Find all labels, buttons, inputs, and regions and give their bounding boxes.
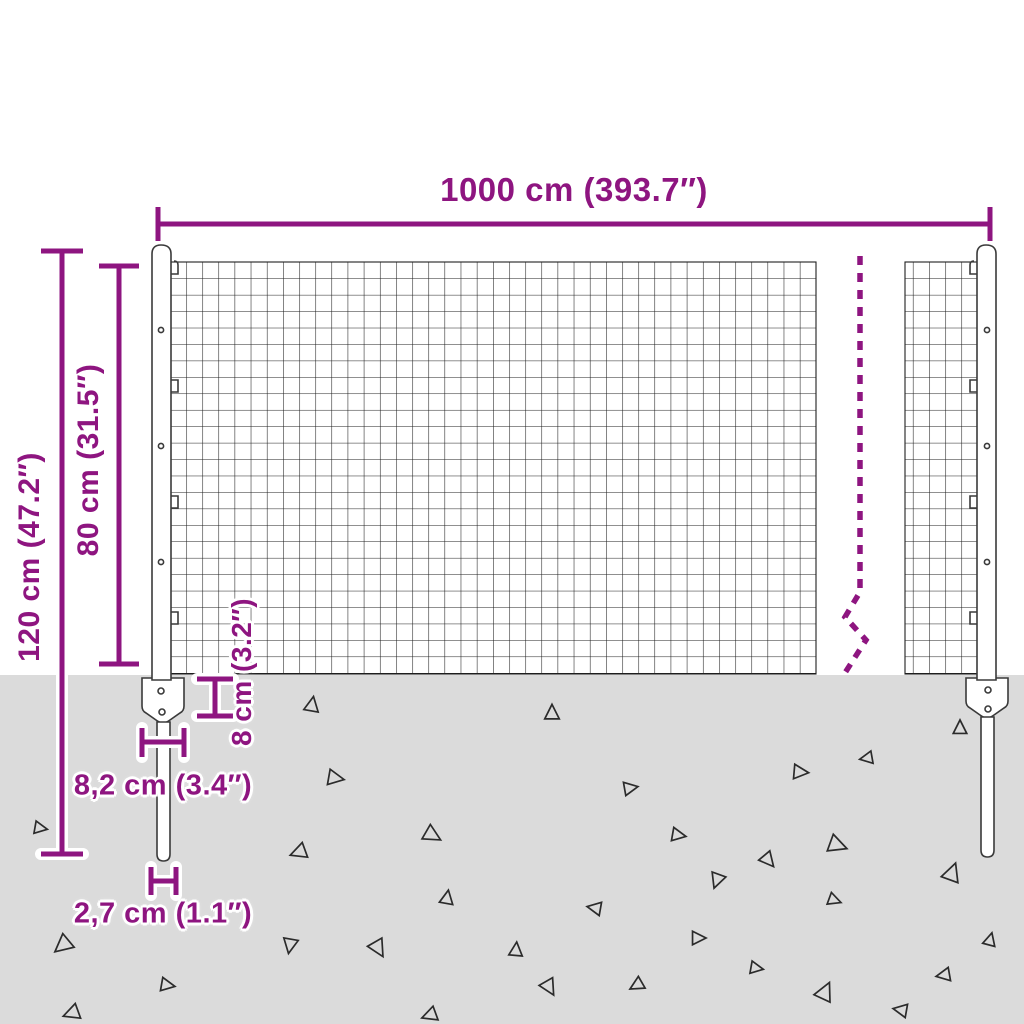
- dim-width-line: [158, 207, 990, 241]
- label-mesh-height: 80 cm (31.5″): [72, 364, 106, 557]
- mesh-panel-right: [905, 262, 978, 674]
- plate-hole: [159, 709, 165, 715]
- label-post-width: 2,7 cm (1.1″): [74, 898, 252, 931]
- break-dashed-line: [843, 256, 866, 676]
- ground: [0, 675, 1024, 1024]
- post-hole: [984, 443, 989, 448]
- fence-diagram-svg: [0, 0, 1024, 1024]
- post-hole: [158, 559, 163, 564]
- post-hole: [984, 327, 989, 332]
- fence-dimension-diagram: 1000 cm (393.7″) 120 cm (47.2″) 80 cm (3…: [0, 0, 1024, 1024]
- anchor-spike: [981, 717, 994, 857]
- label-anchor-depth: 8 cm (3.2″): [226, 598, 258, 746]
- plate-hole: [985, 687, 991, 693]
- label-width: 1000 cm (393.7″): [440, 171, 708, 209]
- post-hole: [158, 443, 163, 448]
- plate-hole: [985, 706, 991, 712]
- mesh-panel-left: [170, 262, 816, 674]
- label-total-height: 120 cm (47.2″): [13, 452, 47, 662]
- post-hole: [984, 559, 989, 564]
- label-plate-width: 8,2 cm (3.4″): [74, 770, 252, 803]
- post-hole: [158, 327, 163, 332]
- plate-hole: [158, 688, 164, 694]
